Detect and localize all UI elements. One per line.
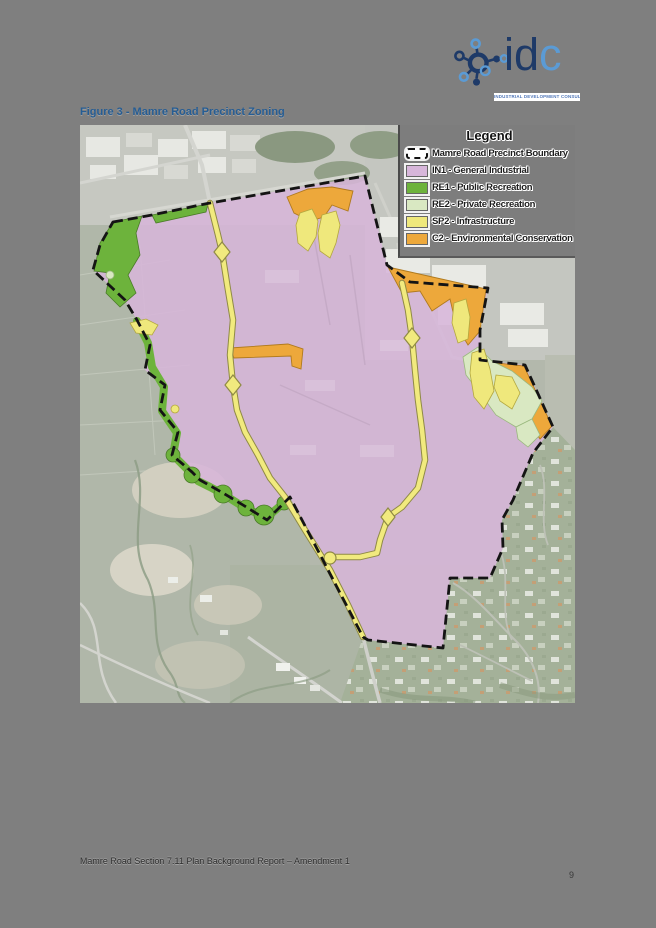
boundary-symbol	[406, 148, 428, 159]
legend-row-c2: C2 - Environmental Conservation	[406, 231, 575, 246]
footer-text: Mamre Road Section 7.11 Plan Background …	[80, 856, 350, 866]
map-legend: Legend Mamre Road Precinct Boundary IN1 …	[398, 125, 575, 258]
logo-tagline: INDUSTRIAL DEVELOPMENT CONSULTANCY	[494, 93, 580, 101]
legend-row-re2: RE2 - Private Recreation	[406, 197, 575, 212]
logo-text-id: id	[504, 29, 539, 80]
swatch-re2	[406, 199, 428, 211]
report-page: idc INDUSTRIAL DEVELOPMENT CONSULTANCY F…	[0, 0, 656, 928]
figure-title: Figure 3 - Mamre Road Precinct Zoning	[80, 106, 285, 118]
legend-row-boundary: Mamre Road Precinct Boundary	[406, 146, 575, 161]
company-logo: idc INDUSTRIAL DEVELOPMENT CONSULTANCY	[452, 30, 592, 108]
legend-row-in1: IN1 - General Industrial	[406, 163, 575, 178]
legend-label-in1: IN1 - General Industrial	[432, 165, 529, 176]
legend-label-c2: C2 - Environmental Conservation	[432, 233, 573, 244]
legend-label-sp2: SP2 - Infrastructure	[432, 216, 514, 227]
legend-label-boundary: Mamre Road Precinct Boundary	[432, 148, 568, 159]
legend-row-re1: RE1 - Public Recreation	[406, 180, 575, 195]
idc-network-icon	[452, 36, 508, 88]
legend-row-sp2: SP2 - Infrastructure	[406, 214, 575, 229]
logo-text-c: c	[539, 29, 562, 80]
legend-title: Legend	[404, 128, 575, 143]
legend-label-re2: RE2 - Private Recreation	[432, 199, 535, 210]
swatch-c2	[406, 233, 428, 245]
network-hub	[470, 55, 487, 72]
swatch-in1	[406, 165, 428, 177]
swatch-re1	[406, 182, 428, 194]
swatch-sp2	[406, 216, 428, 228]
page-number: 9	[569, 870, 574, 880]
logo-wordmark: idc	[504, 32, 562, 77]
legend-label-re1: RE1 - Public Recreation	[432, 182, 532, 193]
zoning-map-figure: Legend Mamre Road Precinct Boundary IN1 …	[80, 125, 575, 703]
